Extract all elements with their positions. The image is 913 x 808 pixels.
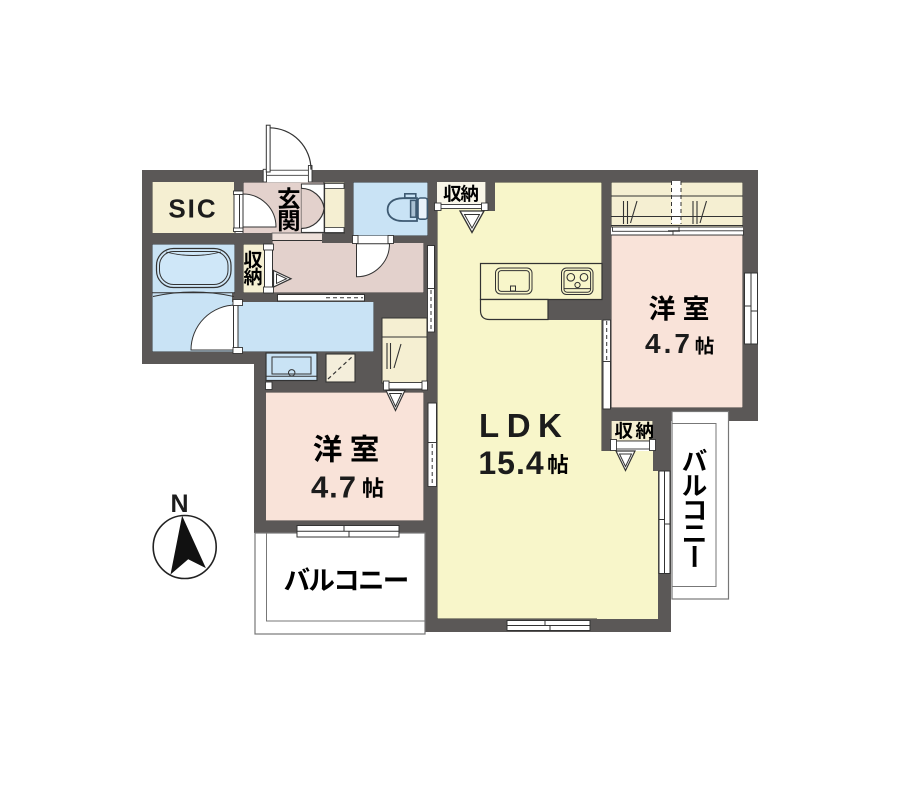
svg-text:4.7: 4.7 (311, 470, 357, 505)
svg-text:LDK: LDK (479, 407, 569, 444)
svg-text:N: N (170, 490, 188, 518)
svg-text:SIC: SIC (168, 194, 217, 224)
svg-text:4.7: 4.7 (645, 328, 693, 359)
svg-text:15.4: 15.4 (478, 445, 544, 481)
